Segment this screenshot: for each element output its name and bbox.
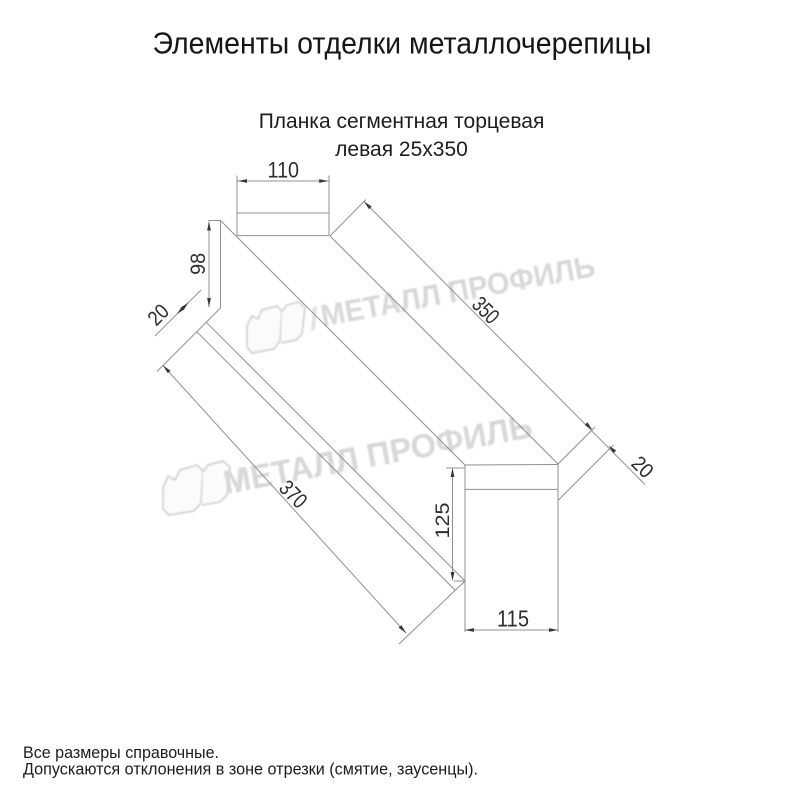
svg-text:Допускаются отклонения в зоне: Допускаются отклонения в зоне отрезки (с… — [23, 761, 478, 779]
svg-text:98: 98 — [187, 253, 210, 275]
svg-text:Планка сегментная торцевая: Планка сегментная торцевая — [259, 110, 545, 133]
svg-text:110: 110 — [268, 157, 300, 182]
svg-text:Все размеры справочные.: Все размеры справочные. — [23, 744, 219, 762]
svg-text:Элементы отделки металлочерепи: Элементы отделки металлочерепицы — [153, 26, 652, 61]
svg-text:левая 25x350: левая 25x350 — [335, 138, 468, 161]
svg-text:115: 115 — [497, 605, 529, 631]
svg-text:125: 125 — [433, 503, 454, 539]
